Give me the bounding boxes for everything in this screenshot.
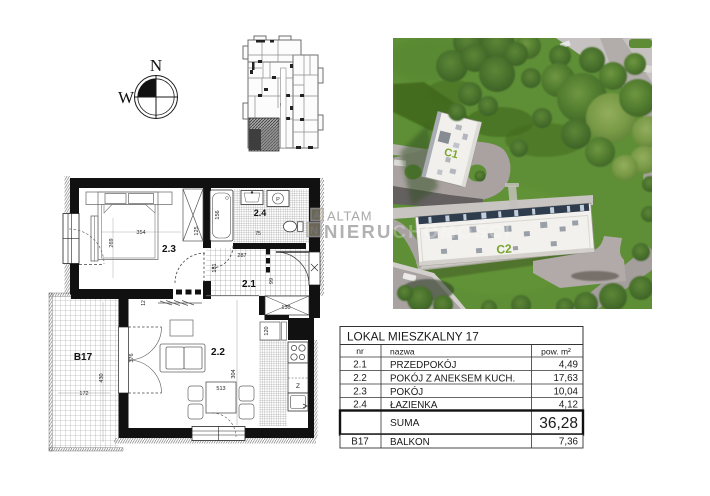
svg-text:269: 269 xyxy=(109,238,115,247)
svg-text:156: 156 xyxy=(215,210,221,219)
svg-text:17,63: 17,63 xyxy=(553,373,578,384)
svg-text:172: 172 xyxy=(79,391,88,397)
svg-text:287: 287 xyxy=(237,253,246,259)
svg-text:Z: Z xyxy=(296,383,300,390)
svg-text:2.4: 2.4 xyxy=(254,208,267,218)
svg-text:W: W xyxy=(118,88,135,107)
svg-text:12: 12 xyxy=(141,300,147,306)
svg-text:SUMA: SUMA xyxy=(390,418,420,429)
svg-text:2.3: 2.3 xyxy=(353,387,367,398)
svg-text:376: 376 xyxy=(129,353,135,362)
svg-text:BALKON: BALKON xyxy=(390,437,430,448)
svg-text:2.2: 2.2 xyxy=(353,373,367,384)
svg-text:nazwa: nazwa xyxy=(390,347,415,357)
svg-text:125: 125 xyxy=(194,226,200,235)
svg-text:A: A xyxy=(313,211,320,222)
svg-text:pow. m²: pow. m² xyxy=(541,347,571,357)
svg-text:LOKAL MIESZKALNY 17: LOKAL MIESZKALNY 17 xyxy=(347,330,479,344)
svg-text:POKÓJ: POKÓJ xyxy=(390,387,423,398)
svg-text:POKÓJ Z ANEKSEM KUCH.: POKÓJ Z ANEKSEM KUCH. xyxy=(390,374,515,385)
svg-text:B17: B17 xyxy=(351,437,368,448)
svg-text:N: N xyxy=(150,56,162,75)
svg-text:2.3: 2.3 xyxy=(162,244,176,255)
svg-text:N: N xyxy=(310,225,318,237)
svg-text:130: 130 xyxy=(281,305,290,311)
svg-text:181: 181 xyxy=(212,263,218,272)
svg-text:PRZEDPOKÓJ: PRZEDPOKÓJ xyxy=(390,360,457,371)
svg-text:513: 513 xyxy=(216,386,225,392)
svg-text:4,49: 4,49 xyxy=(559,360,578,371)
svg-text:2.4: 2.4 xyxy=(353,400,367,411)
svg-text:2.2: 2.2 xyxy=(211,347,225,358)
svg-text:B17: B17 xyxy=(74,352,93,363)
svg-text:4,12: 4,12 xyxy=(559,400,578,411)
svg-text:nr: nr xyxy=(356,346,364,356)
svg-text:99: 99 xyxy=(269,278,275,284)
svg-text:10,04: 10,04 xyxy=(553,387,578,398)
svg-text:2.1: 2.1 xyxy=(353,360,367,371)
svg-text:120: 120 xyxy=(264,326,270,335)
svg-text:75: 75 xyxy=(255,231,261,237)
svg-text:430: 430 xyxy=(99,373,105,382)
svg-text:36,28: 36,28 xyxy=(539,415,578,432)
svg-text:7,36: 7,36 xyxy=(559,437,579,448)
svg-text:354: 354 xyxy=(136,230,145,236)
svg-text:2.1: 2.1 xyxy=(242,279,256,290)
svg-text:C2: C2 xyxy=(496,242,513,257)
svg-text:P: P xyxy=(276,197,280,203)
svg-text:304: 304 xyxy=(231,369,237,378)
